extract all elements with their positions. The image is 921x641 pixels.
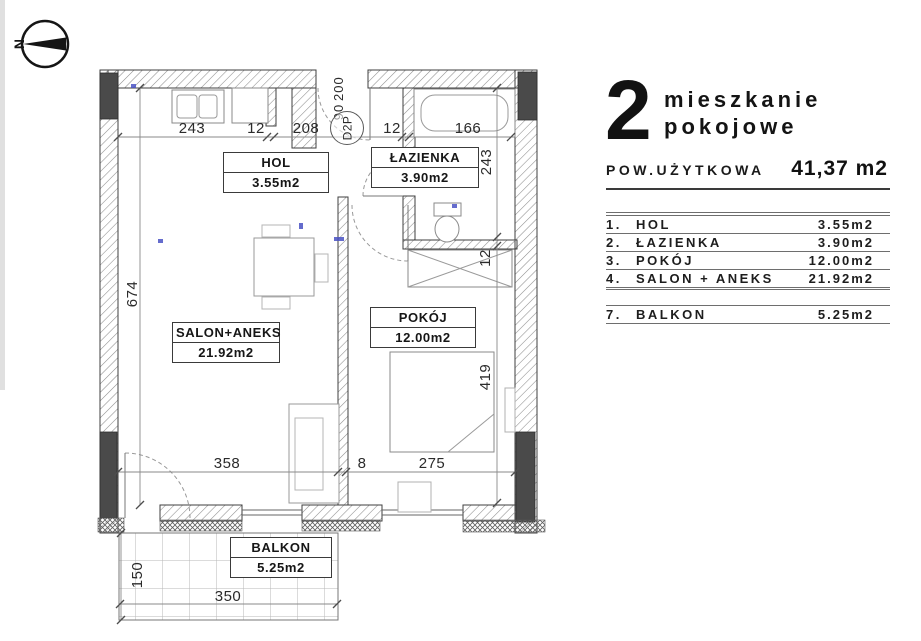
room-legend-table: 1. HOL 3.55m2 2. ŁAZIENKA 3.90m2 3. POKÓ… [606,212,890,324]
room-area: 3.55m2 [224,173,328,192]
legend-row-number: 3. [606,253,636,268]
dim-top-166: 166 [448,121,488,137]
sofa-seat [295,418,323,490]
salon-window [242,510,302,515]
legend-row: 3. POKÓJ 12.00m2 [606,252,890,270]
dim-left-674: 674 [125,274,141,314]
legend-row-number: 7. [606,307,636,322]
room-label-lazienka: ŁAZIENKA 3.90m2 [371,147,479,188]
dim-top-12b: 12 [381,121,403,137]
kitchen-sink-left [177,95,197,118]
room-area: 3.90m2 [372,168,478,187]
kitchen-sink-right [199,95,217,118]
wall-top-right [368,70,537,88]
legend-row-number: 2. [606,235,636,250]
chair-top [262,225,290,237]
insulation-strips [98,518,545,532]
room-name: SALON+ANEKS [173,323,279,343]
legend-row-value: 5.25m2 [818,307,890,322]
room-label-hol: HOL 3.55m2 [223,152,329,193]
legend-row-label: ŁAZIENKA [636,235,818,250]
floorplan-page: { "compass": { "north_label": "N" }, "pl… [0,0,921,641]
chair-bottom [262,297,290,309]
hol-bathroom-wall-lower [403,196,415,240]
usable-area-value: 41,37 m2 [791,157,888,181]
legend-row [606,290,890,306]
north-compass: N [11,21,68,67]
legend-row-label: HOL [636,217,818,232]
wall-bottom-3 [463,505,517,521]
legend-row-value: 3.90m2 [818,235,890,250]
legend-row: 4. SALON + ANEKS 21.92m2 [606,270,890,290]
pokoj-door-swing [352,205,408,261]
legend-row-number: 1. [606,217,636,232]
legend-row: 7. BALKON 5.25m2 [606,306,890,324]
dim-bottom-8: 8 [355,456,369,472]
radiator [505,388,515,432]
wall-bottom-2 [302,505,382,521]
legend-row-label: POKÓJ [636,253,809,268]
kitchen-cabinet [232,88,268,123]
usable-area-label: POW.UŻYTKOWA [606,162,765,178]
toilet-bowl [435,216,459,242]
legend-row-label: BALKON [636,307,818,322]
room-label-balkon: BALKON 5.25m2 [230,537,332,578]
bathroom-bottom-wall [403,240,517,249]
compass-north-letter: N [11,39,27,49]
dim-top-208: 208 [286,121,326,137]
north-arrow-icon [23,38,66,51]
entrance-door-code: D2P [340,116,354,141]
room-label-pokoj: POKÓJ 12.00m2 [370,307,476,348]
room-area: 21.92m2 [173,343,279,362]
room-name: BALKON [231,538,331,558]
entrance-door-height: 200 [332,79,346,101]
room-name: HOL [224,153,328,173]
legend-row: 1. HOL 3.55m2 [606,215,890,234]
room-name: ŁAZIENKA [372,148,478,168]
wall-bottom-1 [160,505,242,521]
legend-row-value: 21.92m2 [809,271,890,286]
apartment-title: mieszkanie pokojowe [664,86,821,140]
chair-right [315,254,328,282]
dim-right-419: 419 [478,357,494,397]
dim-top-243: 243 [172,121,212,137]
panel-divider [606,188,890,190]
apartment-title-line2: pokojowe [664,113,821,140]
legend-row-value: 12.00m2 [809,253,890,268]
legend-row-label: SALON + ANEKS [636,271,809,286]
dim-bottom-275: 275 [412,456,452,472]
dim-right-12: 12 [478,246,494,270]
entrance-pier [292,88,316,148]
dim-top-12a: 12 [245,121,267,137]
room-area: 12.00m2 [371,328,475,347]
dim-right-243: 243 [479,142,495,182]
legend-row: 2. ŁAZIENKA 3.90m2 [606,234,890,252]
room-name: POKÓJ [371,308,475,328]
room-label-salon: SALON+ANEKS 21.92m2 [172,322,280,363]
room-area: 5.25m2 [231,558,331,577]
legend-row-number: 4. [606,271,636,286]
apartment-number: 2 [605,74,652,146]
entrance-door-symbol: D2P [330,111,364,145]
dim-balcony-150: 150 [130,555,146,595]
wall-top-left [108,70,316,88]
nightstand [398,482,431,512]
usable-area-row: POW.UŻYTKOWA 41,37 m2 [606,157,888,181]
apartment-title-line1: mieszkanie [664,86,821,113]
dim-balcony-350: 350 [208,589,248,605]
dining-table [254,238,314,296]
legend-row-value: 3.55m2 [818,217,890,232]
dim-bottom-358: 358 [207,456,247,472]
